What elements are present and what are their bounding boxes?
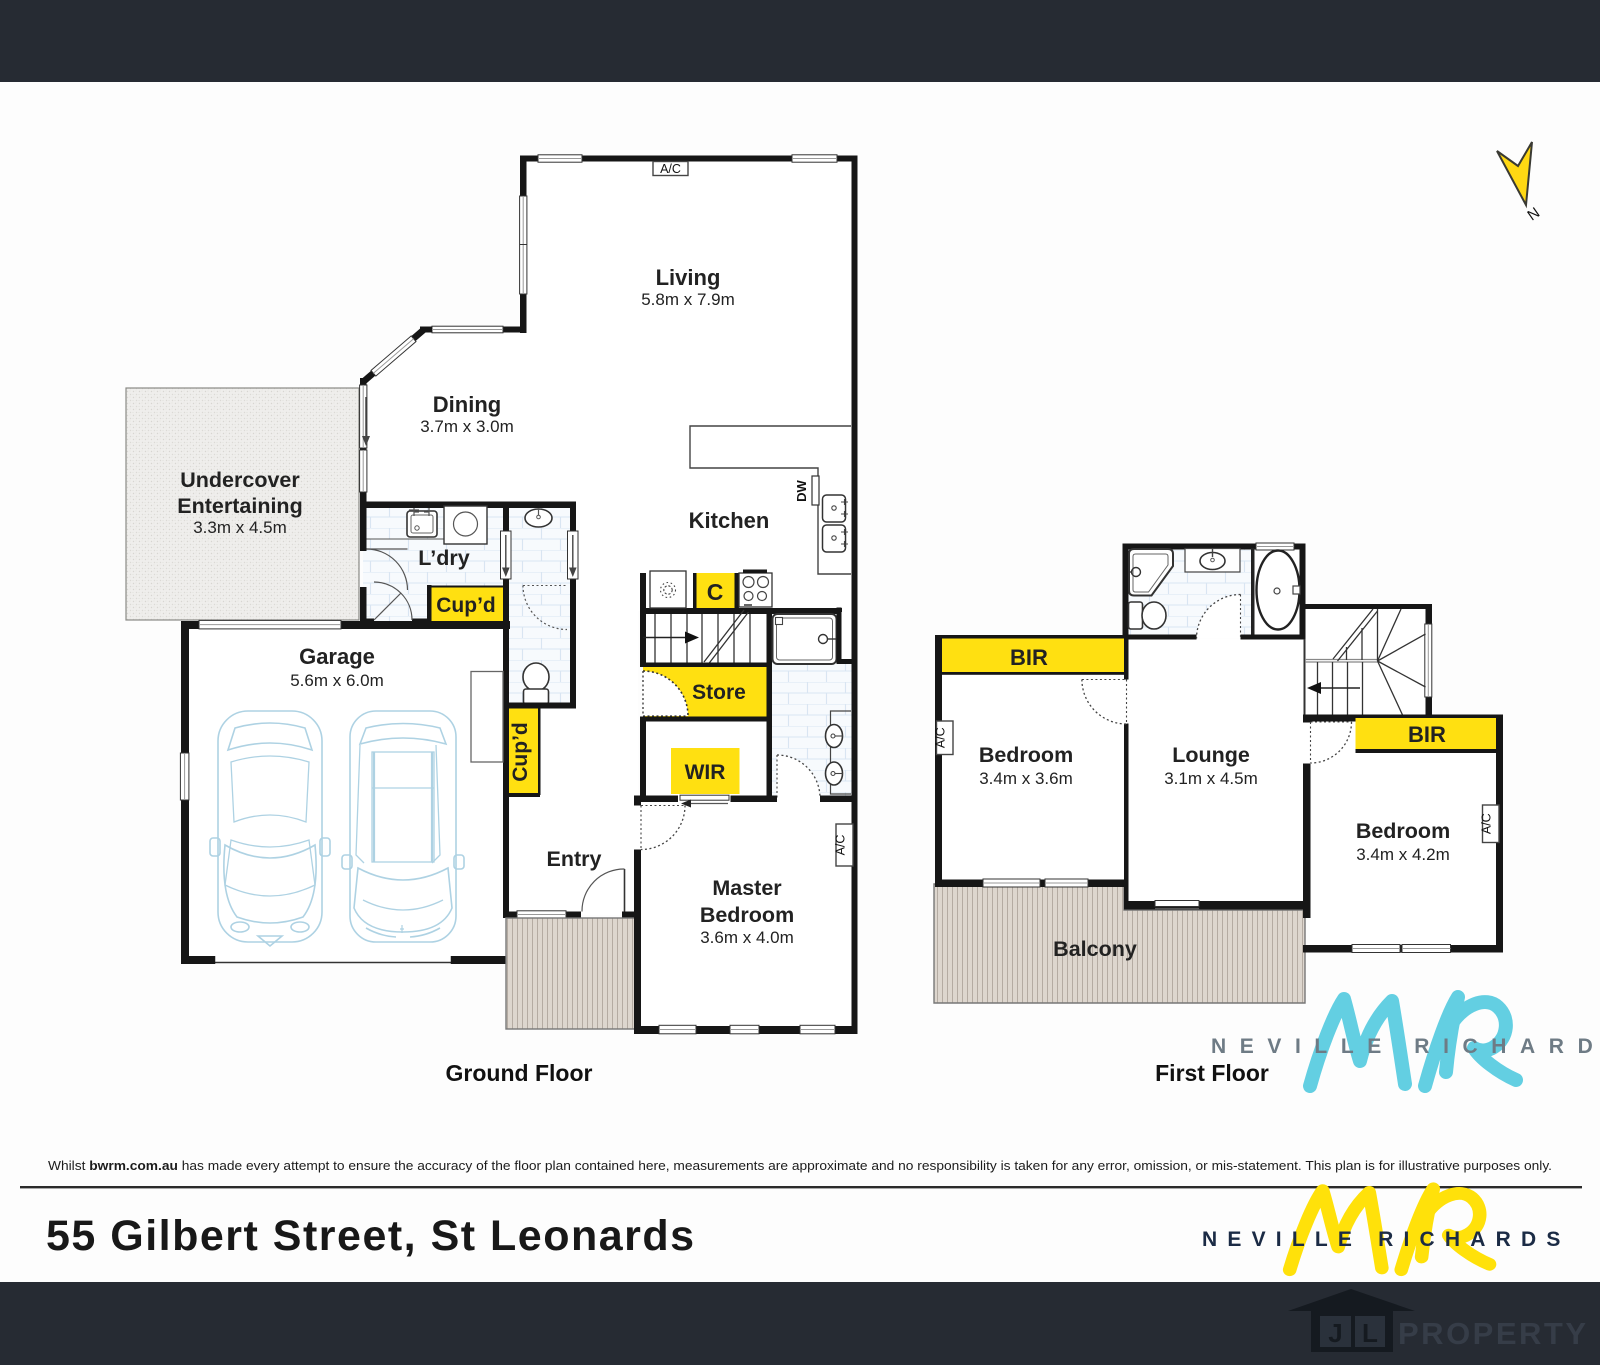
svg-text:Entertaining: Entertaining bbox=[177, 494, 302, 518]
svg-text:Dining: Dining bbox=[433, 392, 501, 417]
svg-text:Living: Living bbox=[656, 265, 721, 290]
svg-text:Cup’d: Cup’d bbox=[436, 594, 495, 617]
svg-text:NEVILLE RICHARDS: NEVILLE RICHARDS bbox=[1211, 1035, 1600, 1058]
svg-text:Master: Master bbox=[712, 876, 782, 900]
svg-text:Whilst bwrm.com.au has made ev: Whilst bwrm.com.au has made every attemp… bbox=[48, 1158, 1552, 1173]
svg-text:Kitchen: Kitchen bbox=[689, 508, 770, 533]
svg-text:3.6m x 4.0m: 3.6m x 4.0m bbox=[700, 928, 794, 947]
svg-text:5.6m x 6.0m: 5.6m x 6.0m bbox=[290, 671, 384, 690]
svg-text:5.8m x 7.9m: 5.8m x 7.9m bbox=[641, 290, 735, 309]
svg-text:3.4m x 3.6m: 3.4m x 3.6m bbox=[979, 769, 1073, 788]
svg-text:First Floor: First Floor bbox=[1155, 1060, 1269, 1086]
svg-text:3.1m x 4.5m: 3.1m x 4.5m bbox=[1164, 769, 1258, 788]
svg-text:Balcony: Balcony bbox=[1053, 937, 1137, 961]
svg-text:J: J bbox=[1328, 1318, 1342, 1348]
svg-text:Lounge: Lounge bbox=[1172, 743, 1250, 767]
svg-text:Bedroom: Bedroom bbox=[979, 743, 1073, 767]
svg-text:A/C: A/C bbox=[934, 727, 948, 748]
svg-text:55 Gilbert Street, St Leonards: 55 Gilbert Street, St Leonards bbox=[46, 1212, 696, 1260]
svg-text:PROPERTY: PROPERTY bbox=[1398, 1316, 1589, 1351]
svg-text:L’dry: L’dry bbox=[418, 546, 469, 570]
svg-text:Store: Store bbox=[692, 681, 746, 704]
svg-text:Bedroom: Bedroom bbox=[1356, 819, 1450, 843]
svg-text:NEVILLE RICHARDS: NEVILLE RICHARDS bbox=[1202, 1228, 1571, 1251]
svg-text:WIR: WIR bbox=[685, 761, 726, 784]
svg-text:Cup’d: Cup’d bbox=[509, 722, 532, 781]
svg-text:BIR: BIR bbox=[1010, 645, 1048, 670]
svg-text:L: L bbox=[1362, 1318, 1378, 1348]
svg-text:Entry: Entry bbox=[547, 847, 602, 871]
svg-text:DW: DW bbox=[794, 479, 809, 501]
svg-text:Garage: Garage bbox=[299, 644, 375, 669]
svg-text:3.4m x 4.2m: 3.4m x 4.2m bbox=[1356, 845, 1450, 864]
svg-text:C: C bbox=[707, 579, 724, 605]
svg-text:BIR: BIR bbox=[1408, 722, 1446, 747]
svg-text:3.3m x 4.5m: 3.3m x 4.5m bbox=[193, 518, 287, 537]
svg-text:Undercover: Undercover bbox=[180, 468, 300, 492]
svg-text:Bedroom: Bedroom bbox=[700, 903, 794, 927]
svg-text:3.7m x 3.0m: 3.7m x 3.0m bbox=[420, 417, 514, 436]
svg-text:A/C: A/C bbox=[834, 835, 848, 856]
svg-text:Ground Floor: Ground Floor bbox=[446, 1060, 593, 1086]
svg-text:A/C: A/C bbox=[660, 162, 681, 176]
svg-text:A/C: A/C bbox=[1480, 813, 1494, 834]
